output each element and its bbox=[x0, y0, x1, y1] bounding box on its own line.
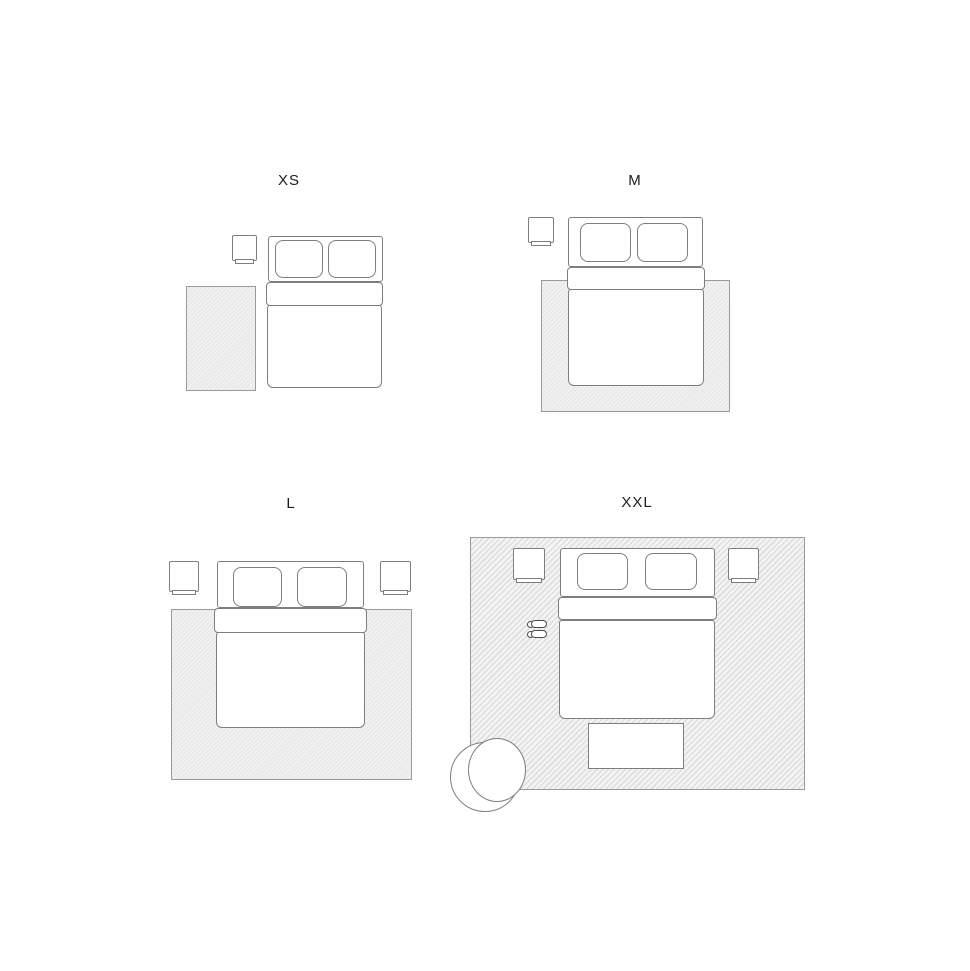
nightstand-icon bbox=[169, 561, 199, 592]
rug-size-guide: XS M L bbox=[0, 0, 970, 971]
bed-duvet bbox=[267, 305, 382, 388]
bench-icon bbox=[588, 723, 684, 769]
size-label-m: M bbox=[530, 172, 740, 189]
bed-fold bbox=[567, 267, 705, 290]
slippers-icon bbox=[527, 620, 548, 638]
bed-duvet bbox=[568, 289, 704, 386]
slipper-toe bbox=[531, 620, 547, 628]
rug-xs-icon bbox=[186, 286, 256, 391]
pillow-icon bbox=[580, 223, 631, 262]
pillow-icon bbox=[328, 240, 376, 278]
pillow-icon bbox=[577, 553, 628, 590]
slipper-icon bbox=[527, 620, 548, 628]
slipper-icon bbox=[527, 630, 548, 638]
pillow-icon bbox=[297, 567, 347, 607]
bed-duvet bbox=[216, 632, 365, 728]
armchair-seat bbox=[468, 738, 526, 802]
bed-icon bbox=[558, 548, 717, 719]
pillow-icon bbox=[637, 223, 688, 262]
slipper-toe bbox=[531, 630, 547, 638]
nightstand-icon bbox=[380, 561, 411, 592]
bed-icon bbox=[266, 236, 383, 388]
nightstand-icon bbox=[728, 548, 759, 580]
armchair-icon bbox=[450, 738, 527, 815]
nightstand-icon bbox=[232, 235, 257, 261]
size-label-xs: XS bbox=[164, 172, 414, 189]
bed-icon bbox=[567, 217, 705, 386]
pillow-icon bbox=[275, 240, 323, 278]
bed-icon bbox=[214, 561, 367, 728]
bed-fold bbox=[214, 608, 367, 633]
pillow-icon bbox=[645, 553, 697, 590]
nightstand-icon bbox=[528, 217, 554, 243]
bed-duvet bbox=[559, 620, 715, 719]
size-label-xxl: XXL bbox=[512, 494, 762, 511]
size-label-l: L bbox=[166, 495, 416, 512]
nightstand-icon bbox=[513, 548, 545, 580]
pillow-icon bbox=[233, 567, 282, 607]
bed-fold bbox=[558, 597, 717, 620]
bed-fold bbox=[266, 282, 383, 306]
